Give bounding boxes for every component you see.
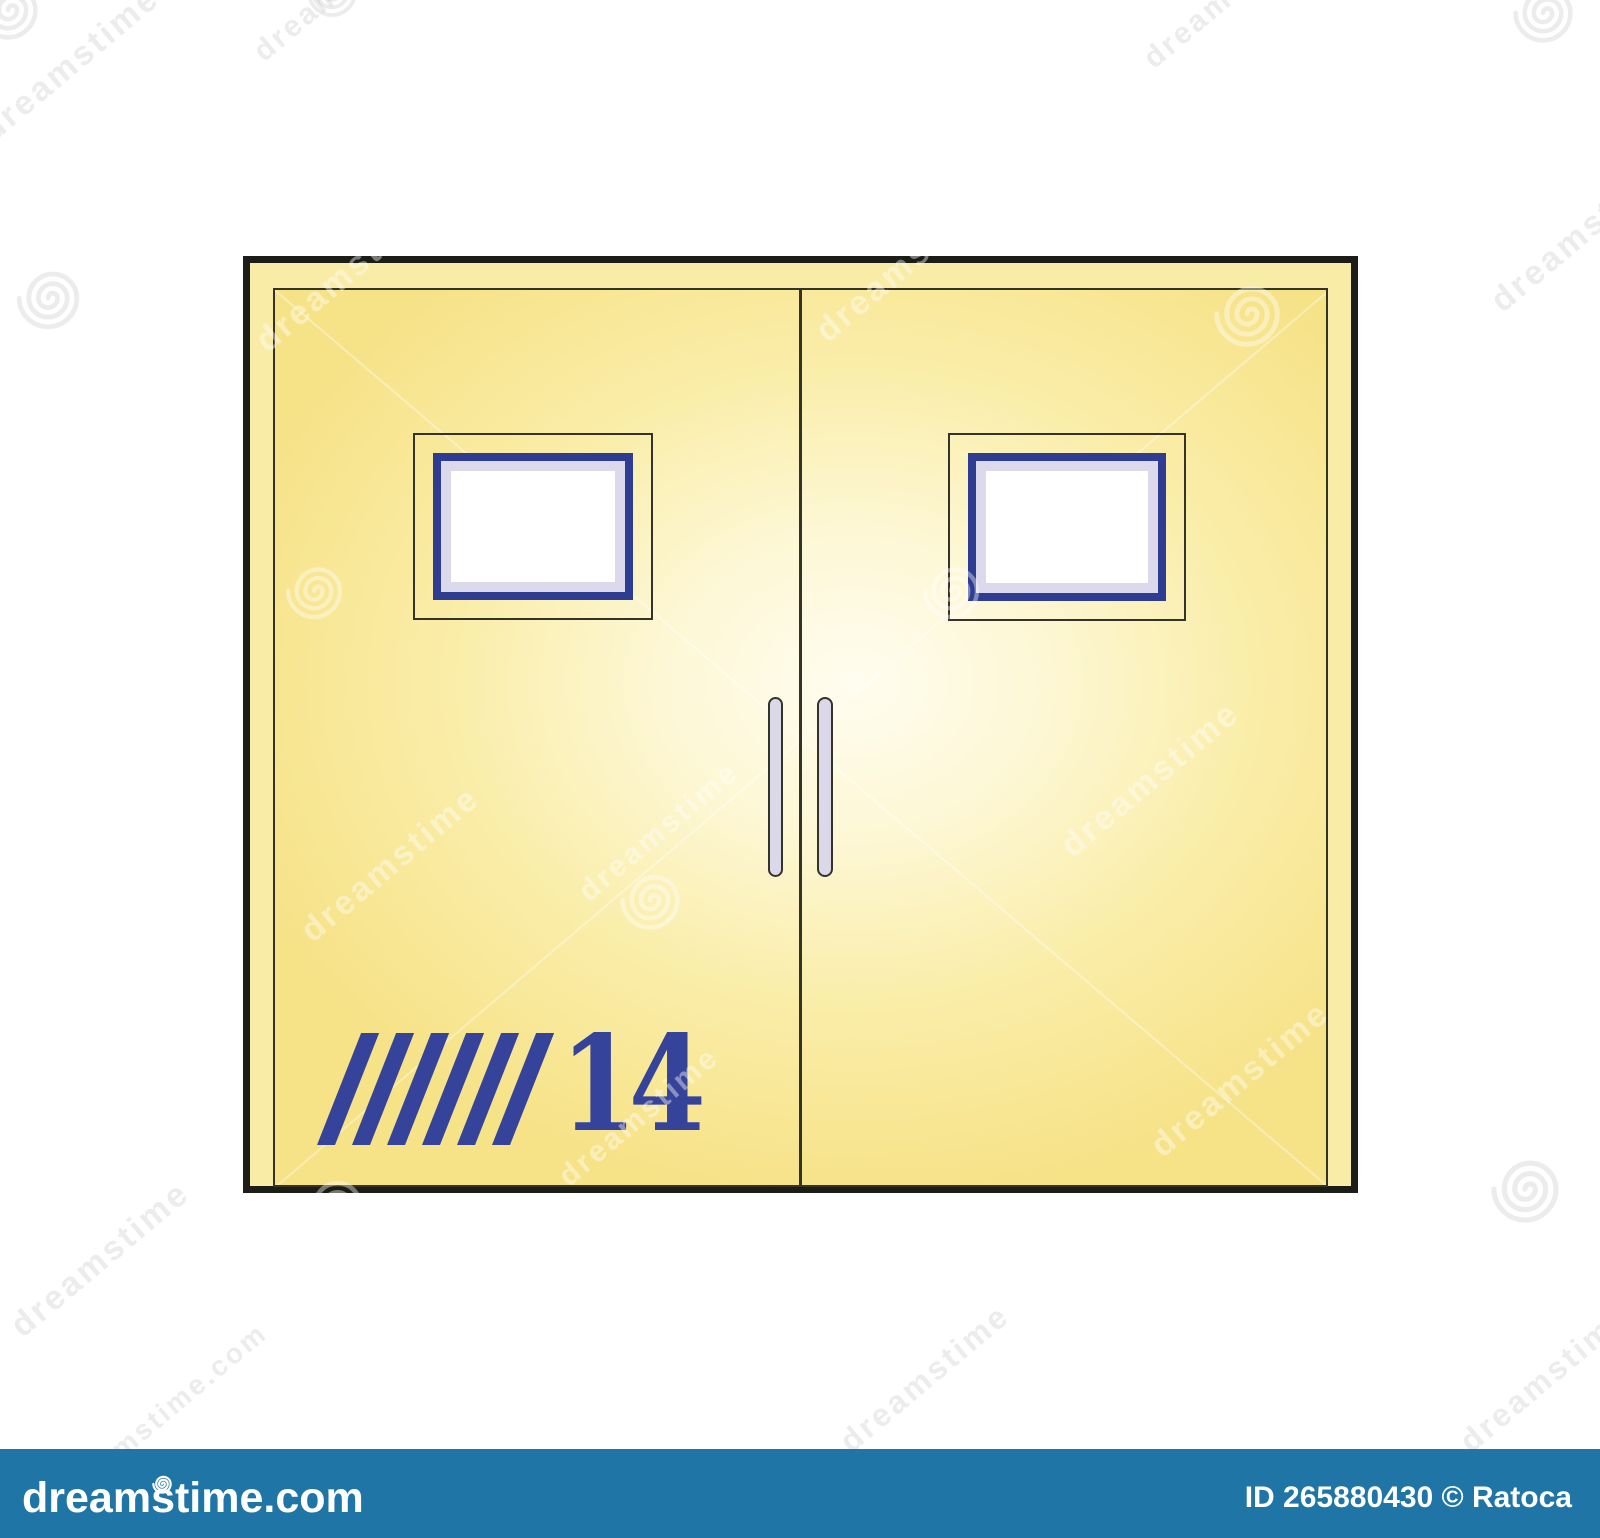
watermark-text: dreamstime <box>833 1297 1017 1460</box>
image-credit: ID 265880430 © Ratoca <box>1245 1481 1572 1515</box>
watermark-text: dreamstime <box>1453 1297 1600 1460</box>
stock-illustration-canvas: dreamstime dreamstime dreamstime dreamst… <box>0 0 1600 1538</box>
swirl-icon <box>8 258 88 338</box>
watermark-bar: dreamstime.com ID 265880430 © Ratoca <box>0 1449 1600 1538</box>
dreamstime-logo-text: dreamstime.com <box>22 1474 364 1522</box>
watermark-text: dreamstime <box>1483 149 1600 321</box>
left-door-window <box>413 433 653 620</box>
left-window-glass <box>441 461 625 592</box>
watermark-text: dreamstime <box>0 0 168 150</box>
left-door-handle <box>768 697 783 877</box>
left-window-frame <box>433 453 633 600</box>
watermark-text: dreamstime <box>247 0 421 69</box>
swirl-icon <box>1482 1146 1568 1232</box>
door-number: 14 <box>560 1019 698 1151</box>
logo-swirl-icon <box>150 1458 174 1482</box>
right-door-handle <box>817 697 833 877</box>
swirl-icon <box>0 0 46 48</box>
swirl-icon <box>300 0 364 24</box>
swirl-icon <box>1505 0 1581 51</box>
watermark-text: dreamstime <box>3 1174 197 1346</box>
right-window-glass <box>976 461 1158 593</box>
dreamstime-logo: dreamstime.com <box>22 1474 364 1523</box>
watermark-text: dreamstime <box>1137 0 1311 76</box>
right-window-frame <box>968 453 1166 601</box>
door-center-gap <box>799 288 802 1187</box>
right-door-window <box>948 433 1186 621</box>
